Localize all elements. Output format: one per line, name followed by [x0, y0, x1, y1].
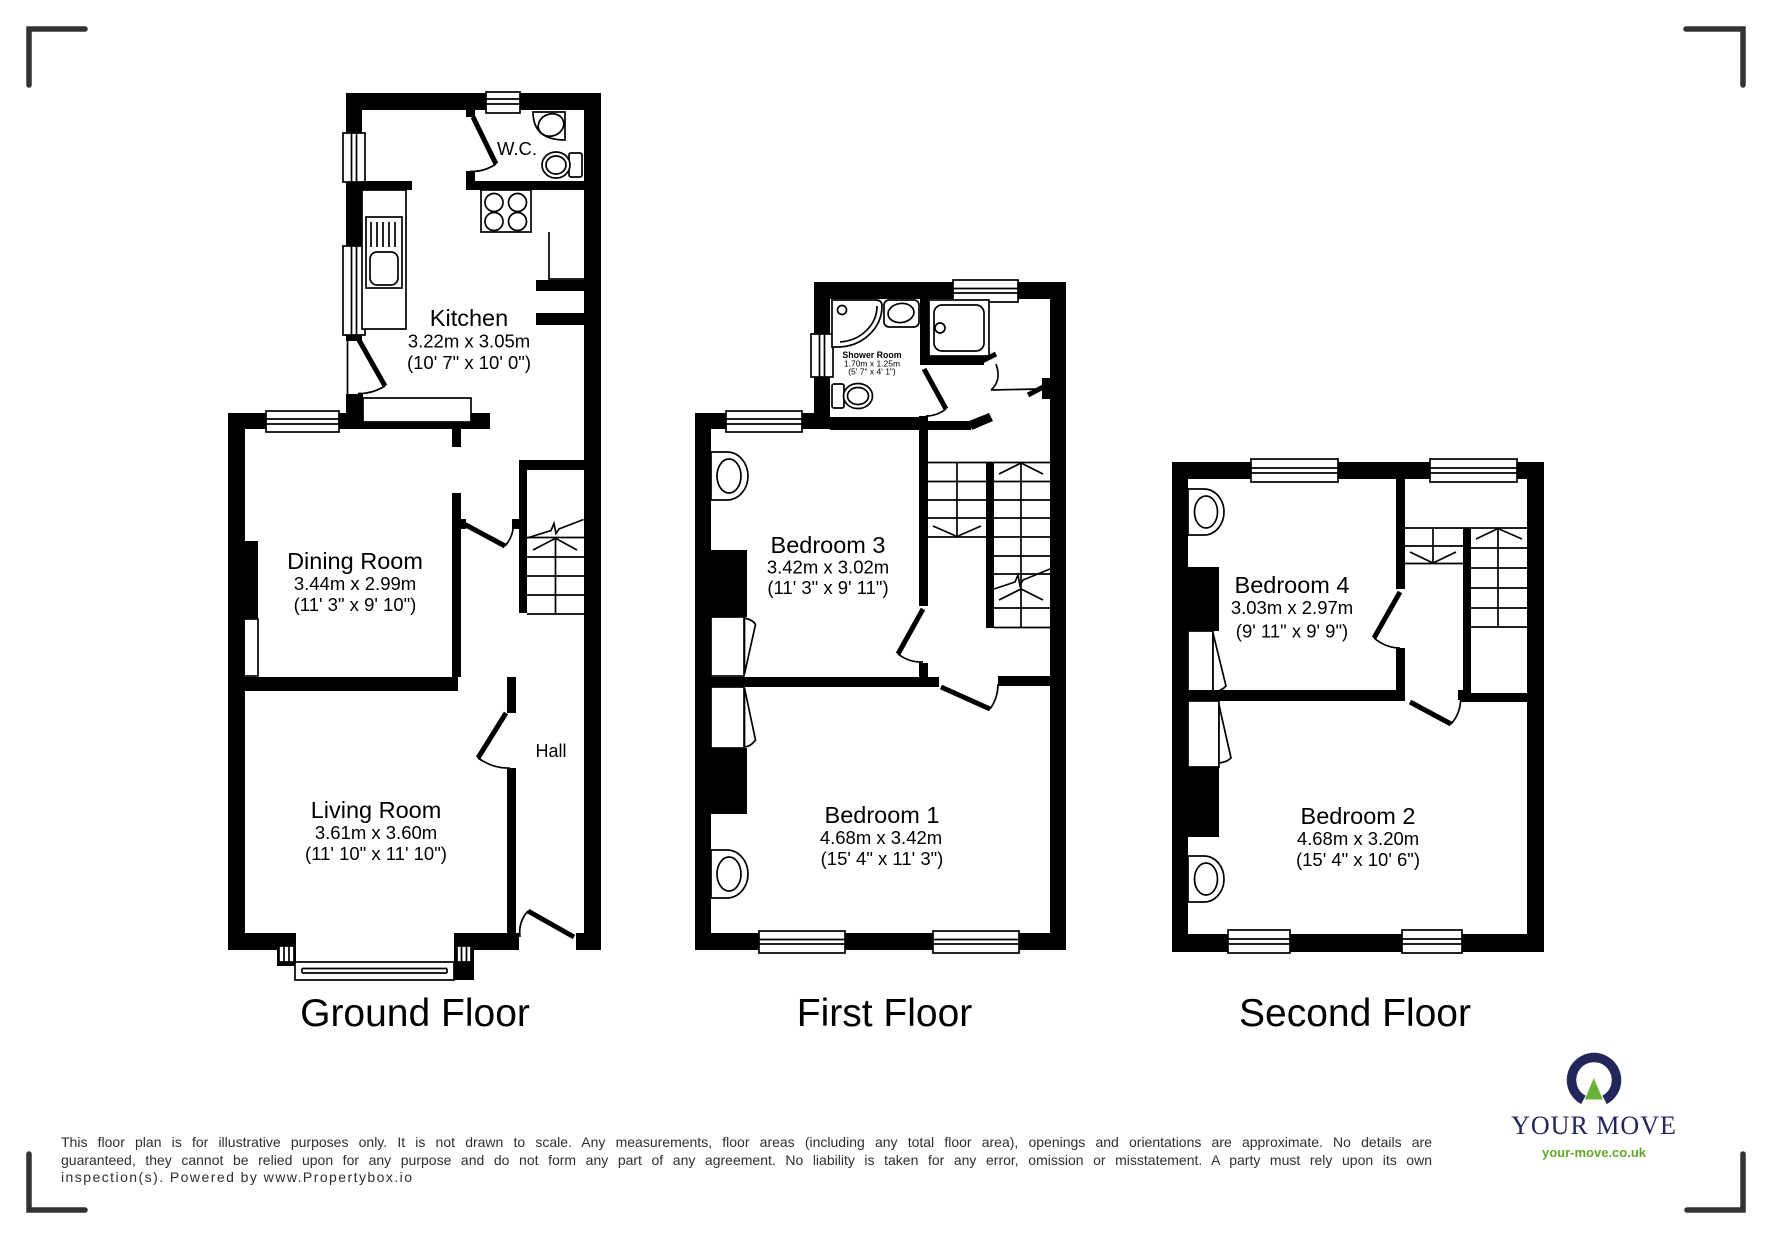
svg-text:First Floor: First Floor: [797, 992, 973, 1035]
svg-text:3.03m x 2.97m: 3.03m x 2.97m: [1231, 597, 1353, 618]
svg-text:(10' 7" x 10' 0"): (10' 7" x 10' 0"): [407, 352, 531, 373]
svg-text:Hall: Hall: [535, 741, 566, 761]
svg-text:(9' 11" x 9' 9"): (9' 11" x 9' 9"): [1236, 621, 1348, 642]
svg-text:4.68m x 3.42m: 4.68m x 3.42m: [820, 827, 942, 848]
svg-text:(11' 3" x 9' 11"): (11' 3" x 9' 11"): [767, 577, 888, 598]
svg-text:Bedroom 3: Bedroom 3: [771, 532, 886, 558]
svg-text:Bedroom 2: Bedroom 2: [1301, 803, 1416, 829]
svg-text:YOUR MOVE: YOUR MOVE: [1511, 1111, 1677, 1140]
svg-text:(15' 4" x 11' 3"): (15' 4" x 11' 3"): [821, 848, 944, 869]
svg-text:Dining Room: Dining Room: [287, 548, 423, 574]
svg-text:(5' 7" x 4' 1"): (5' 7" x 4' 1"): [848, 367, 896, 377]
svg-text:Living Room: Living Room: [311, 797, 442, 823]
svg-text:4.68m x 3.20m: 4.68m x 3.20m: [1297, 828, 1419, 849]
svg-text:your-move.co.uk: your-move.co.uk: [1542, 1145, 1647, 1160]
svg-text:(11' 3" x 9' 10"): (11' 3" x 9' 10"): [294, 594, 417, 615]
svg-text:Kitchen: Kitchen: [430, 305, 508, 331]
svg-text:3.22m x 3.05m: 3.22m x 3.05m: [408, 331, 530, 352]
svg-text:Bedroom 4: Bedroom 4: [1235, 572, 1350, 598]
svg-text:3.61m x 3.60m: 3.61m x 3.60m: [315, 822, 437, 843]
svg-text:Bedroom 1: Bedroom 1: [825, 802, 940, 828]
svg-text:Second Floor: Second Floor: [1239, 992, 1471, 1035]
svg-text:(15' 4" x 10' 6"): (15' 4" x 10' 6"): [1296, 849, 1420, 870]
svg-text:3.42m x 3.02m: 3.42m x 3.02m: [767, 557, 889, 578]
svg-text:(11' 10" x 11' 10"): (11' 10" x 11' 10"): [305, 843, 447, 864]
svg-text:W.C.: W.C.: [497, 138, 537, 159]
svg-text:3.44m x 2.99m: 3.44m x 2.99m: [294, 573, 416, 594]
svg-text:Ground Floor: Ground Floor: [300, 992, 530, 1035]
